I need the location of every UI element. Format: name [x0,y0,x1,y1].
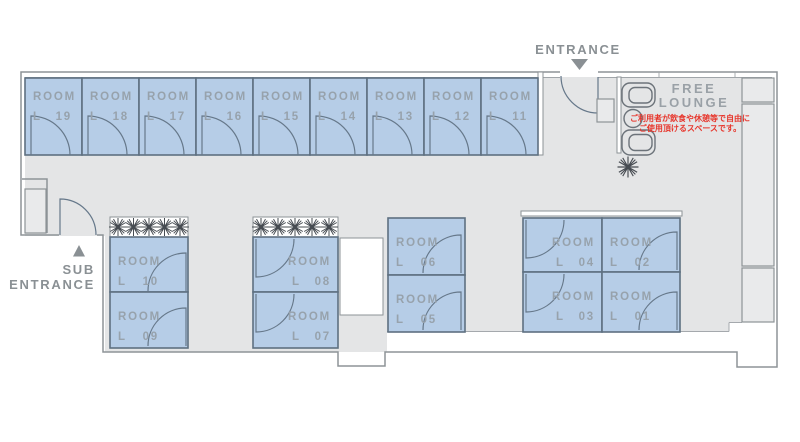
room-L15: ROOM L 15 [253,78,310,155]
room-label: ROOM [90,91,133,103]
room-label: ROOM [552,237,595,249]
room-prefix: L [432,111,441,123]
room-prefix: L [489,111,498,123]
room-prefix: L [610,257,619,269]
room-prefix: L [318,111,327,123]
room-number: 04 [579,257,595,269]
room-number: 05 [421,314,437,326]
room-L10: ROOM L 10 [110,237,188,292]
planter-strip [109,217,189,237]
room-number: 12 [455,111,471,123]
lounge-note-line2: ご使用頂けるスペースです。 [639,123,741,133]
room-number: 07 [315,331,331,343]
floor-plan-page: ROOM L 19 ROOM L 18 ROOM L 17 ROOM L 16 … [0,0,800,442]
room-L08: ROOM L 08 [253,237,338,292]
floor-plan: ROOM L 19 ROOM L 18 ROOM L 17 ROOM L 16 … [0,0,800,442]
room-number: 16 [227,111,243,123]
room-label: ROOM [552,291,595,303]
planter-strip [252,217,338,237]
entrance-arrow-icon [571,59,588,70]
room-label: ROOM [318,91,361,103]
room-label: ROOM [288,311,331,323]
room-L14: ROOM L 14 [310,78,367,155]
room-prefix: L [33,111,42,123]
entrance-shelf [597,99,614,122]
sub-entrance-arrow-icon [73,245,85,257]
room-label: ROOM [33,91,76,103]
room-number: 11 [512,111,528,123]
room-number: 14 [341,111,357,123]
room-number: 01 [635,311,651,323]
room-L04: ROOM L 04 [523,218,602,272]
room-L07: ROOM L 07 [253,292,338,348]
room-label: ROOM [261,91,304,103]
room-prefix: L [147,111,156,123]
room-L12: ROOM L 12 [424,78,481,155]
room-number: 18 [113,111,129,123]
room-label: ROOM [610,237,653,249]
room-label: ROOM [118,311,161,323]
room-prefix: L [118,331,127,343]
room-prefix: L [90,111,99,123]
plant-icon [286,218,304,236]
room-prefix: L [261,111,270,123]
room-prefix: L [396,257,405,269]
room-number: 02 [635,257,651,269]
sub-entrance-label-line1: SUB [62,262,95,277]
room-prefix: L [375,111,384,123]
room-L17: ROOM L 17 [139,78,196,155]
plant-icon [618,157,639,178]
lounge-partition [617,77,621,153]
storage-cabinet [742,268,774,322]
room-label: ROOM [204,91,247,103]
room-prefix: L [292,331,301,343]
room-prefix: L [610,311,619,323]
sub-entrance-label-line2: ENTRANCE [9,277,95,292]
plant-icon [320,218,338,236]
sub-entrance-sign: SUB ENTRANCE [9,245,95,292]
room-L03: ROOM L 03 [523,272,602,332]
service-area [340,238,383,315]
niche-cabinet [25,189,46,233]
room-label: ROOM [610,291,653,303]
room-number: 10 [143,276,159,288]
room-number: 13 [398,111,414,123]
room-label: ROOM [118,256,161,268]
room-label: ROOM [489,91,532,103]
room-prefix: L [556,257,565,269]
room-L02: ROOM L 02 [602,218,680,272]
room-label: ROOM [147,91,190,103]
free-lounge-label-line1: FREE [672,81,717,96]
room-prefix: L [118,276,127,288]
room-label: ROOM [375,91,418,103]
room-number: 03 [579,311,595,323]
room-L01: ROOM L 01 [602,272,680,332]
room-L09: ROOM L 09 [110,292,188,348]
room-number: 19 [56,111,72,123]
room-label: ROOM [432,91,475,103]
plant-icon [269,218,287,236]
room-label: ROOM [288,256,331,268]
storage-cabinet [742,78,774,102]
storage-cabinet [742,104,774,266]
room-L19: ROOM L 19 [25,78,82,155]
room-prefix: L [204,111,213,123]
entrance-sign: ENTRANCE [535,42,621,70]
room-number: 06 [421,257,437,269]
lounge-note-line1: ご利用者が飲食や休憩等で自由に [630,113,750,123]
wall-cap [521,211,682,216]
room-L11: ROOM L 11 [481,78,538,155]
room-number: 15 [284,111,300,123]
free-lounge-label-line2: LOUNGE [659,95,730,110]
room-L16: ROOM L 16 [196,78,253,155]
room-L13: ROOM L 13 [367,78,424,155]
room-prefix: L [556,311,565,323]
entrance-label: ENTRANCE [535,42,621,57]
room-L05: ROOM L 05 [388,275,465,332]
room-L18: ROOM L 18 [82,78,139,155]
room-L06: ROOM L 06 [388,218,465,275]
room-prefix: L [292,276,301,288]
room-label: ROOM [396,294,439,306]
room-number: 17 [170,111,186,123]
room-number: 08 [315,276,331,288]
room-number: 09 [143,331,159,343]
plant-icon [303,218,321,236]
room-label: ROOM [396,237,439,249]
room-prefix: L [396,314,405,326]
